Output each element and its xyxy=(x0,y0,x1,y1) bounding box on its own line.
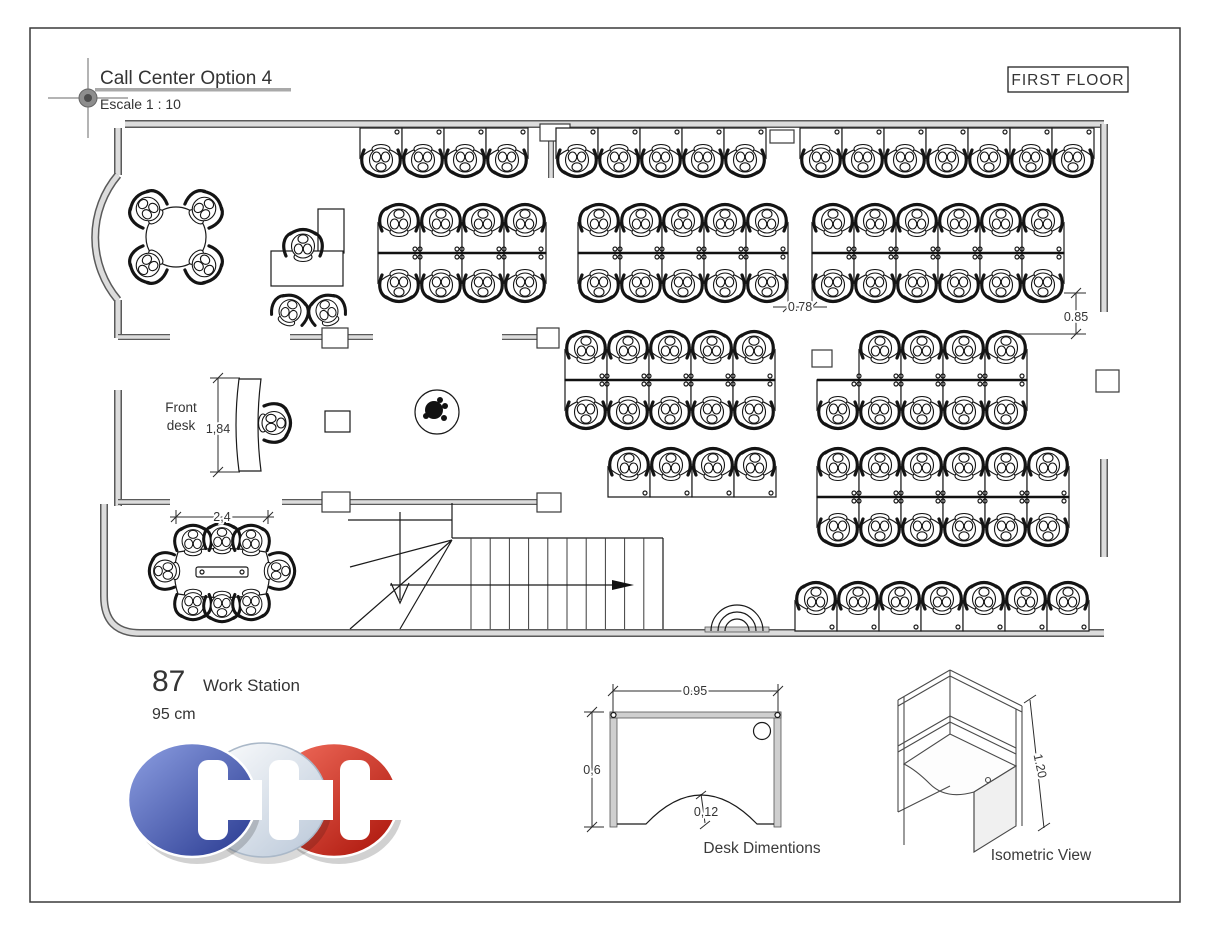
stair-arrowhead xyxy=(612,580,634,590)
floor-tag-label: FIRST FLOOR xyxy=(1011,72,1124,89)
column xyxy=(1096,370,1119,392)
side-table xyxy=(325,411,350,432)
sheet-scale: Escale 1 : 10 xyxy=(100,96,181,112)
dim-desk-cutout: 0,12 xyxy=(694,805,718,819)
dim-conference: 2,4 xyxy=(213,510,230,524)
dim-right-gap: 0.85 xyxy=(1064,310,1088,324)
column xyxy=(537,328,559,348)
column xyxy=(770,130,794,143)
drawing-sheet: Call Center Option 4 Escale 1 : 10 FIRST… xyxy=(0,0,1209,934)
workstation-count: 87 xyxy=(152,665,185,698)
arc-feature-base xyxy=(705,627,769,632)
workstation-size: 95 cm xyxy=(152,706,196,723)
dim-iso-height: 1.20 xyxy=(1031,753,1050,780)
compass-icon xyxy=(84,94,92,102)
front-desk-label: desk xyxy=(167,418,196,433)
stair-break-lines xyxy=(350,512,452,629)
column xyxy=(812,350,832,367)
office-chair xyxy=(268,290,313,331)
dim-desk-width: 0.95 xyxy=(683,684,707,698)
dim-front-desk: 1,84 xyxy=(206,422,230,436)
dim-desk-depth: 0,6 xyxy=(583,763,600,777)
front-desk-label: Front xyxy=(165,400,197,415)
plant xyxy=(437,397,443,403)
dim-aisle: 0.78 xyxy=(788,300,812,314)
office-chair xyxy=(259,404,291,443)
sheet-title: Call Center Option 4 xyxy=(100,68,273,89)
plant xyxy=(441,415,447,421)
floor-plan-svg: Call Center Option 4 Escale 1 : 10 FIRST… xyxy=(0,0,1209,934)
office-chair xyxy=(304,290,349,331)
column xyxy=(322,328,348,348)
workstations xyxy=(360,128,1094,631)
isometric-caption: Isometric View xyxy=(991,847,1092,864)
front-desk xyxy=(236,379,261,471)
plant xyxy=(423,413,429,419)
company-logo: CCC xyxy=(128,743,404,864)
stairs-enclosure xyxy=(348,503,663,629)
plant xyxy=(442,403,448,409)
isometric-drawing xyxy=(898,670,1022,852)
floor-tag: FIRST FLOOR xyxy=(1008,67,1128,92)
column xyxy=(322,492,350,512)
desk-detail-caption: Desk Dimentions xyxy=(703,840,820,857)
workstation-count-label: Work Station xyxy=(203,676,300,695)
column xyxy=(537,493,561,512)
